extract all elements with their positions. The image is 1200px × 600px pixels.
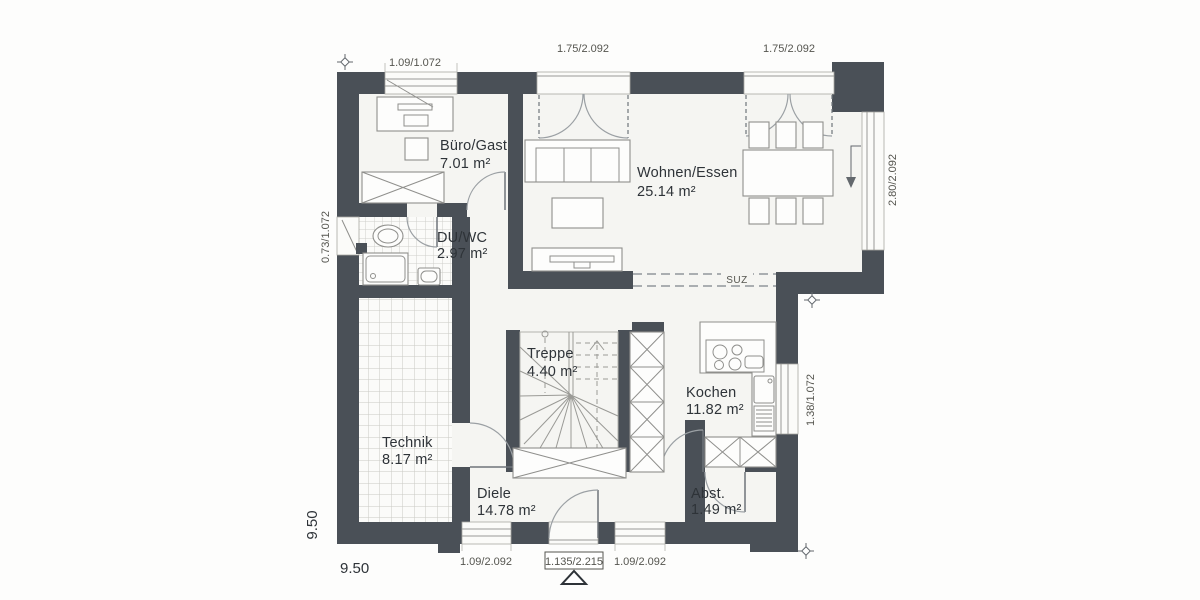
dim-top-window: 1.09/1.072 <box>389 57 441 69</box>
toilet <box>418 268 440 285</box>
coffee-table <box>552 198 603 228</box>
room-area-kochen: 11.82 m² <box>686 402 744 418</box>
room-label-abst: Abst. <box>691 486 725 502</box>
room-area-wohnen: 25.14 m² <box>637 184 696 200</box>
room-area-duwc: 2.97 m² <box>437 246 488 262</box>
wardrobe <box>362 172 444 203</box>
room-area-buero: 7.01 m² <box>440 156 491 172</box>
room-label-duwc: DU/WC <box>437 230 487 246</box>
room-label-diele: Diele <box>477 486 511 502</box>
room-area-treppe: 4.40 m² <box>527 364 578 380</box>
washbasin <box>373 225 403 247</box>
room-label-buero: Büro/Gast <box>440 138 507 154</box>
shower <box>363 253 408 285</box>
dining-table <box>743 150 833 196</box>
room-area-abst: 1.49 m² <box>691 502 742 518</box>
tv-board <box>532 248 622 271</box>
room-area-diele: 14.78 m² <box>477 503 536 519</box>
closet-column <box>630 332 664 472</box>
dining-set <box>743 122 833 224</box>
dim-bottom-window-right: 1.09/2.092 <box>614 556 666 568</box>
dim-total-width: 9.50 <box>340 560 369 577</box>
dim-bottom-window-left: 1.09/2.092 <box>460 556 512 568</box>
dim-top-door-right: 1.75/2.092 <box>763 43 815 55</box>
dim-top-door-left: 1.75/2.092 <box>557 43 609 55</box>
chair <box>405 138 428 160</box>
room-label-technik: Technik <box>382 435 433 451</box>
room-label-treppe: Treppe <box>527 346 574 362</box>
floorplan-drawing: SUZ <box>0 0 1200 600</box>
room-label-wohnen: Wohnen/Essen <box>637 165 737 181</box>
window-bottom-left <box>462 522 511 551</box>
window-bottom-right <box>615 522 665 551</box>
dim-left-window: 0.73/1.072 <box>320 211 332 263</box>
sofa <box>525 140 630 182</box>
kitchen-base-cabinets <box>705 437 776 467</box>
survey-marker-icon <box>798 543 814 559</box>
window-right-large <box>862 112 884 250</box>
room-area-technik: 8.17 m² <box>382 452 433 468</box>
dim-kitchen-window: 1.38/1.072 <box>805 374 817 426</box>
sideboard <box>513 448 626 478</box>
dim-right-window: 2.80/2.092 <box>887 154 899 206</box>
survey-marker-icon <box>804 292 820 308</box>
dim-total-depth: 9.50 <box>304 510 321 539</box>
window-kitchen <box>776 364 798 434</box>
dim-entry-door: 1.135/2.215 <box>545 556 603 568</box>
floorplan-page: SUZ <box>0 0 1200 600</box>
survey-marker-icon <box>337 54 353 70</box>
entrance-arrow-icon <box>562 571 586 584</box>
lintel-label: SUZ <box>726 275 748 286</box>
tiled-floor-technik <box>359 298 452 522</box>
room-label-kochen: Kochen <box>686 385 736 401</box>
